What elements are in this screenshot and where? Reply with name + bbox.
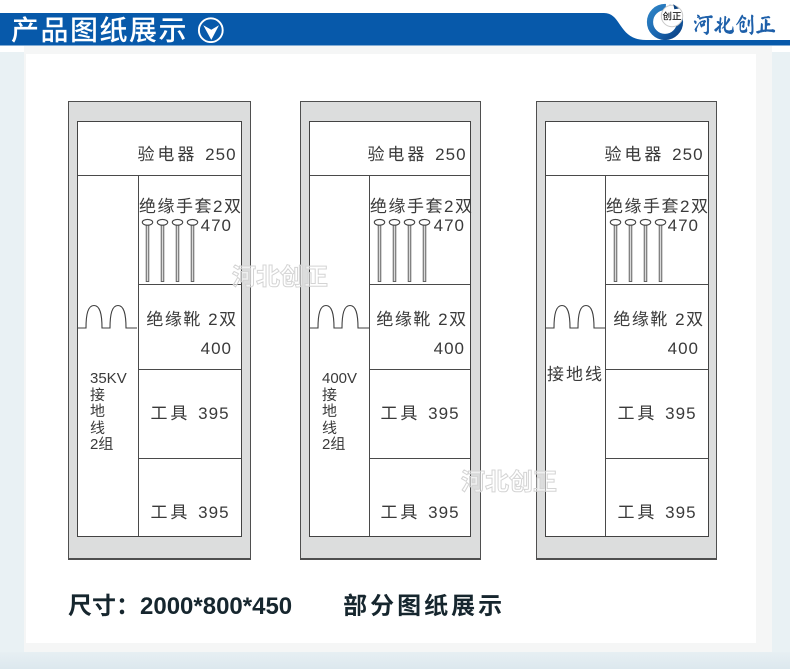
svg-text:创正: 创正 (662, 9, 682, 23)
